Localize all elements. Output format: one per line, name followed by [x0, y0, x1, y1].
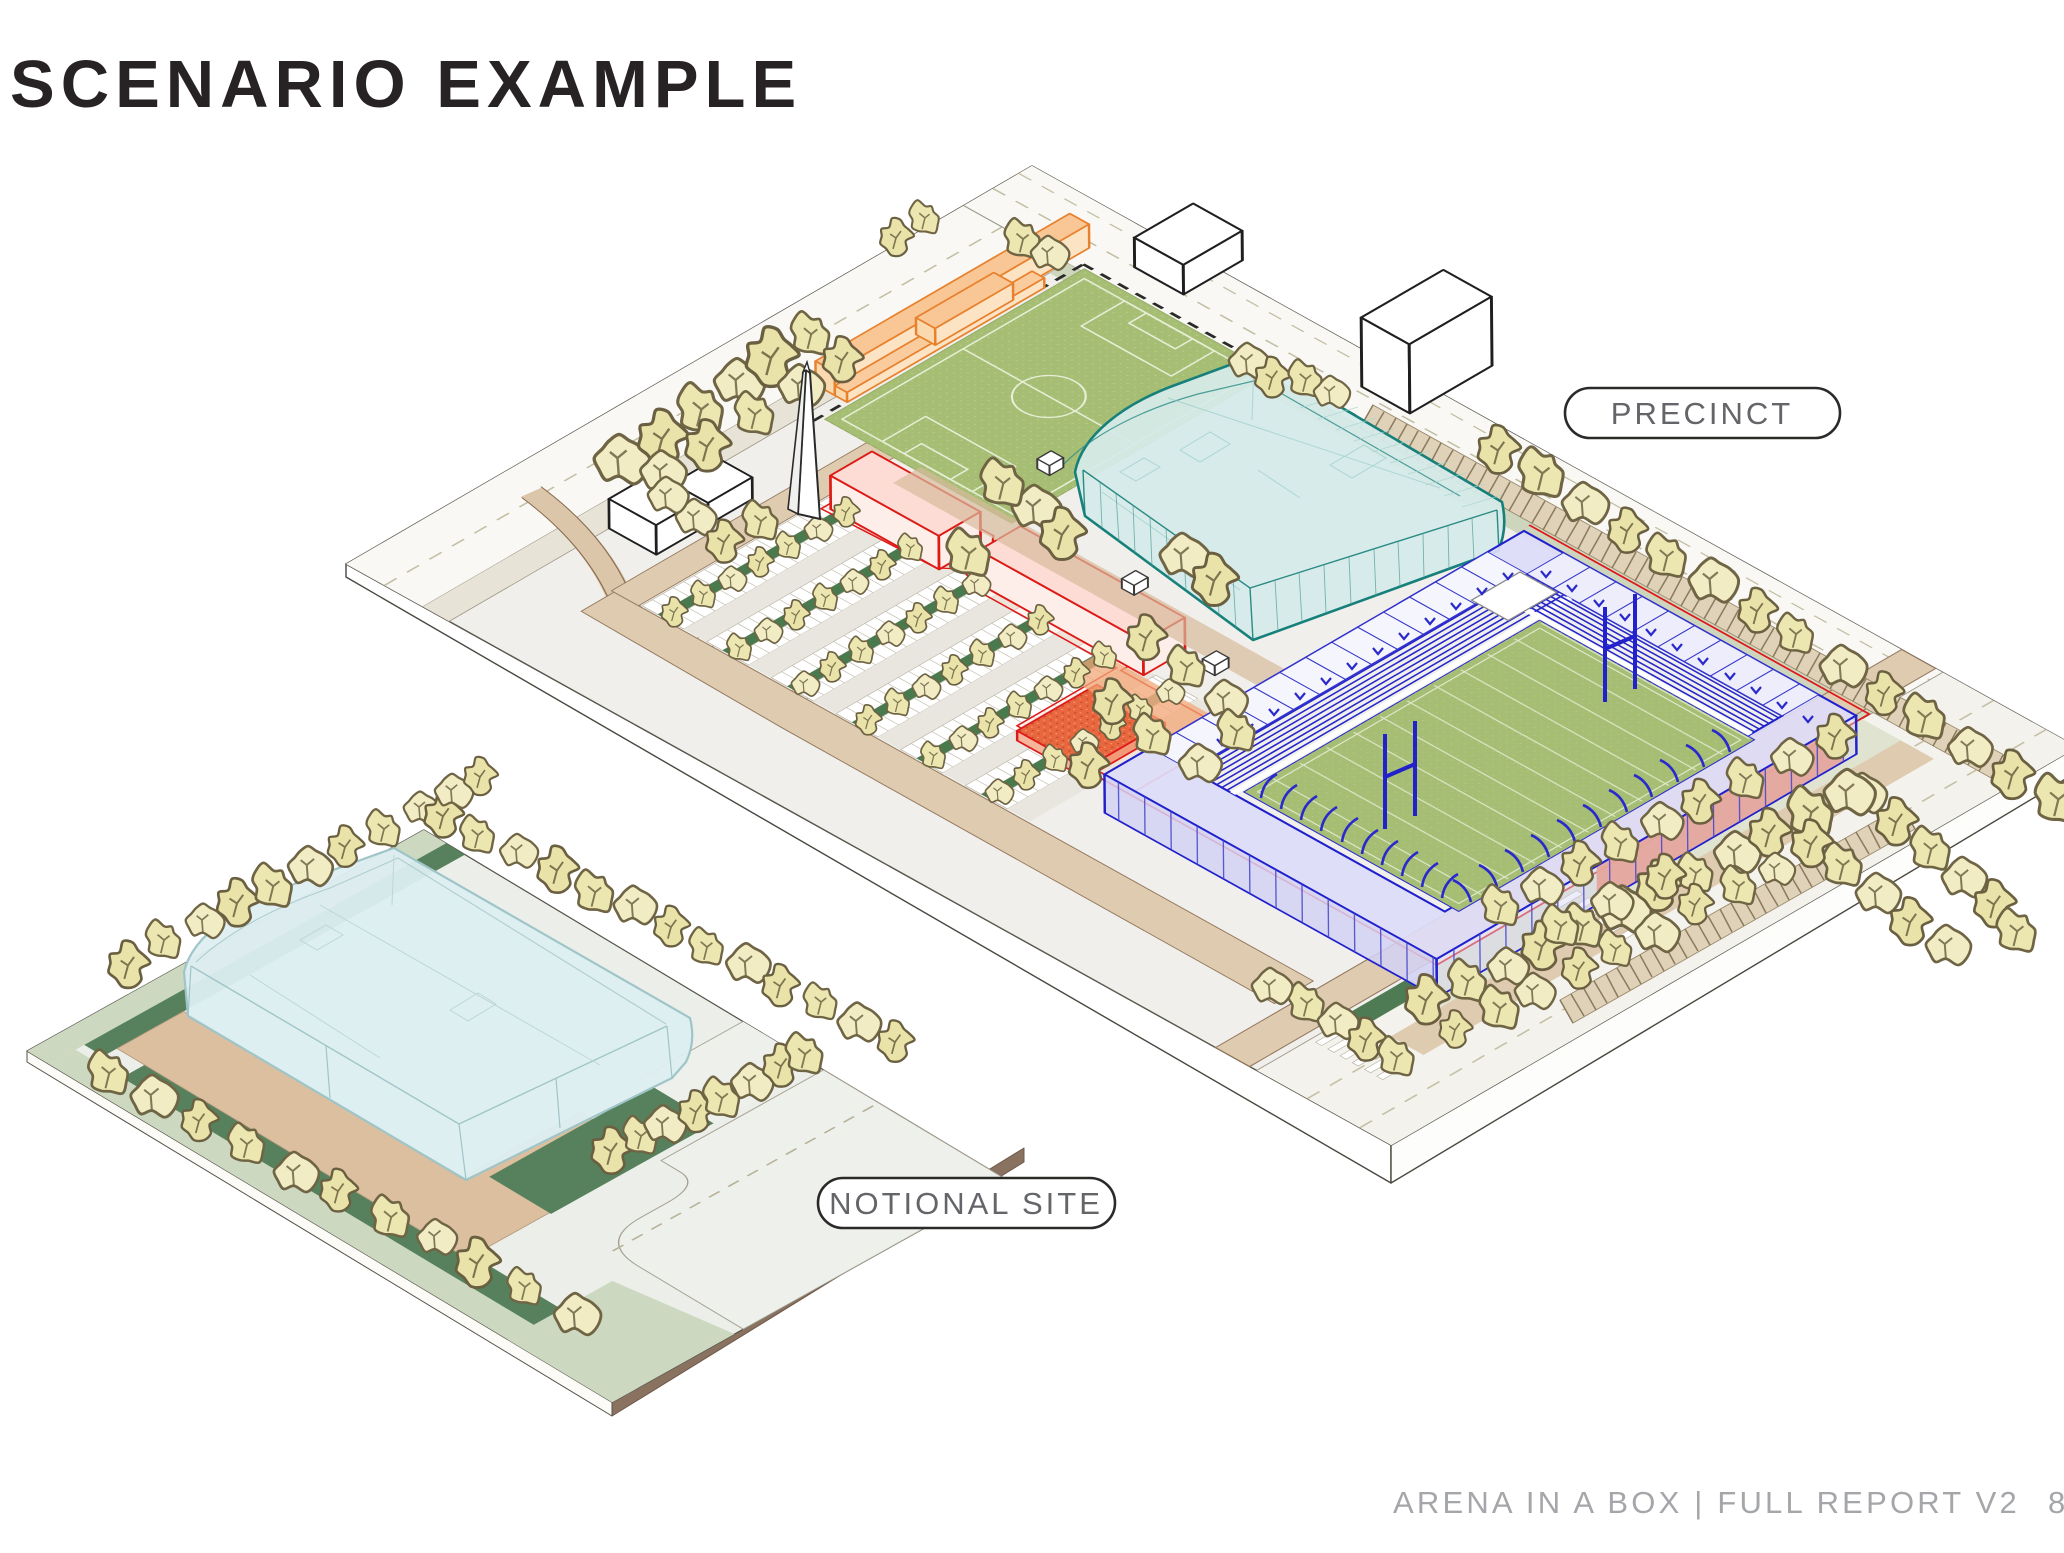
- svg-text:SCENARIO EXAMPLE: SCENARIO EXAMPLE: [10, 47, 802, 122]
- svg-text:8: 8: [2048, 1485, 2064, 1520]
- svg-text:PRECINCT: PRECINCT: [1611, 396, 1793, 431]
- svg-text:NOTIONAL SITE: NOTIONAL SITE: [829, 1186, 1103, 1221]
- svg-text:ARENA IN A BOX | FULL REPORT V: ARENA IN A BOX | FULL REPORT V2: [1393, 1485, 2020, 1520]
